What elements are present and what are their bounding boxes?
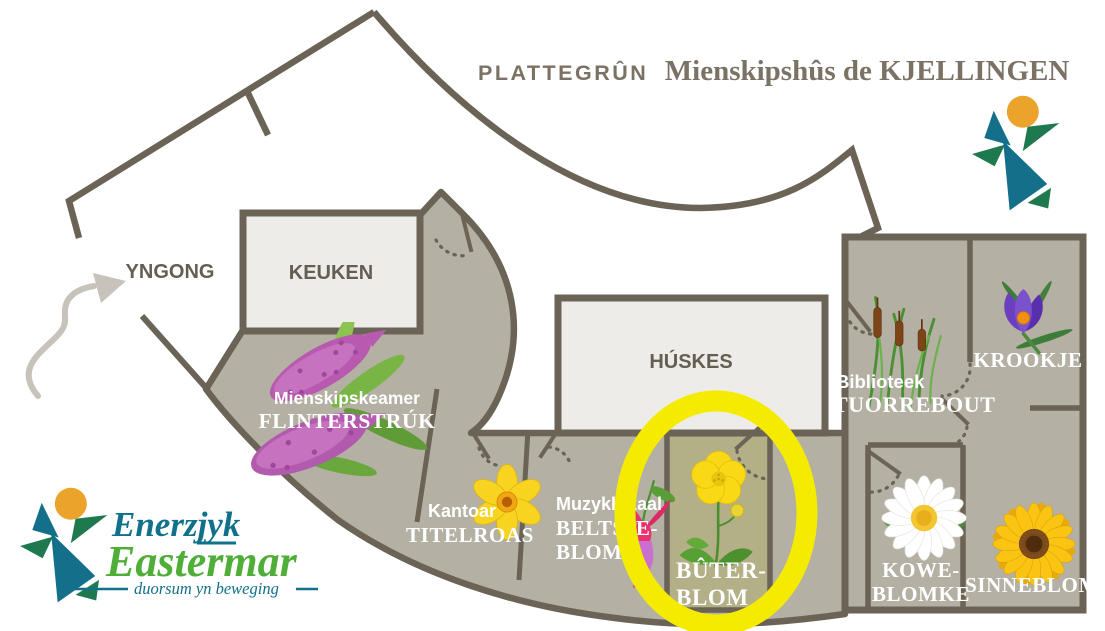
yngong-divider-wall	[142, 316, 208, 390]
label-flinterstruk-name: FLINTERSTRÚK	[259, 409, 436, 433]
logo-tagline: duorsum yn beweging	[134, 579, 279, 598]
label-beltsjeblom-line1: BELTSJE-	[556, 516, 658, 540]
enerzjyk-figure-logo-icon	[972, 96, 1059, 211]
label-buterblom-line2: BLOM	[676, 585, 749, 610]
daisy-flower-icon	[881, 476, 966, 560]
label-titelroas-name: TITELROAS	[406, 523, 534, 547]
label-flinterstruk-prefix: Mienskipskeamer	[274, 388, 420, 408]
label-beltsjeblom-line2: BLOM	[556, 540, 623, 564]
enerzjyk-eastermar-logo: Enerzjyk Eastermar duorsum yn beweging	[20, 488, 318, 603]
label-koweblomke-line1: KOWE-	[882, 558, 960, 582]
label-huskes: HÚSKES	[649, 349, 732, 373]
floorplan-svg: YNGONG KEUKEN HÚSKES Mienskipskeamer FLI…	[0, 0, 1105, 631]
label-keuken: KEUKEN	[289, 262, 373, 284]
label-buterblom-line1: BÛTER-	[676, 557, 767, 583]
entrance-arrow-icon	[29, 273, 126, 396]
label-flinterstruk: Mienskipskeamer FLINTERSTRÚK	[259, 388, 436, 433]
page-title-prefix: PLATTEGRÛN	[478, 60, 648, 85]
label-tuorrebout-prefix: Biblioteek	[836, 371, 925, 392]
outer-wall-tick	[247, 91, 268, 135]
label-koweblomke-line2: BLOMKE	[872, 582, 970, 606]
label-krookje: KROOKJE	[973, 348, 1082, 372]
label-titelroas-prefix: Kantoar	[428, 501, 496, 521]
label-sinneblom: SINNEBLOM	[965, 573, 1099, 597]
label-yngong: YNGONG	[126, 261, 215, 283]
label-tuorrebout-name: TUORREBOUT	[833, 392, 995, 417]
label-beltsjeblom-prefix: Muzyklokaal	[556, 494, 662, 514]
outer-wall-left	[69, 12, 374, 238]
floorplan-page: YNGONG KEUKEN HÚSKES Mienskipskeamer FLI…	[0, 0, 1105, 631]
page-title-name: Mienskipshûs de KJELLINGEN	[665, 55, 1070, 87]
page-title: PLATTEGRÛN Mienskipshûs de KJELLINGEN	[478, 55, 1069, 87]
label-koweblomke: KOWE- BLOMKE	[872, 558, 970, 606]
enerzjyk-figure-mark-icon	[20, 488, 107, 603]
